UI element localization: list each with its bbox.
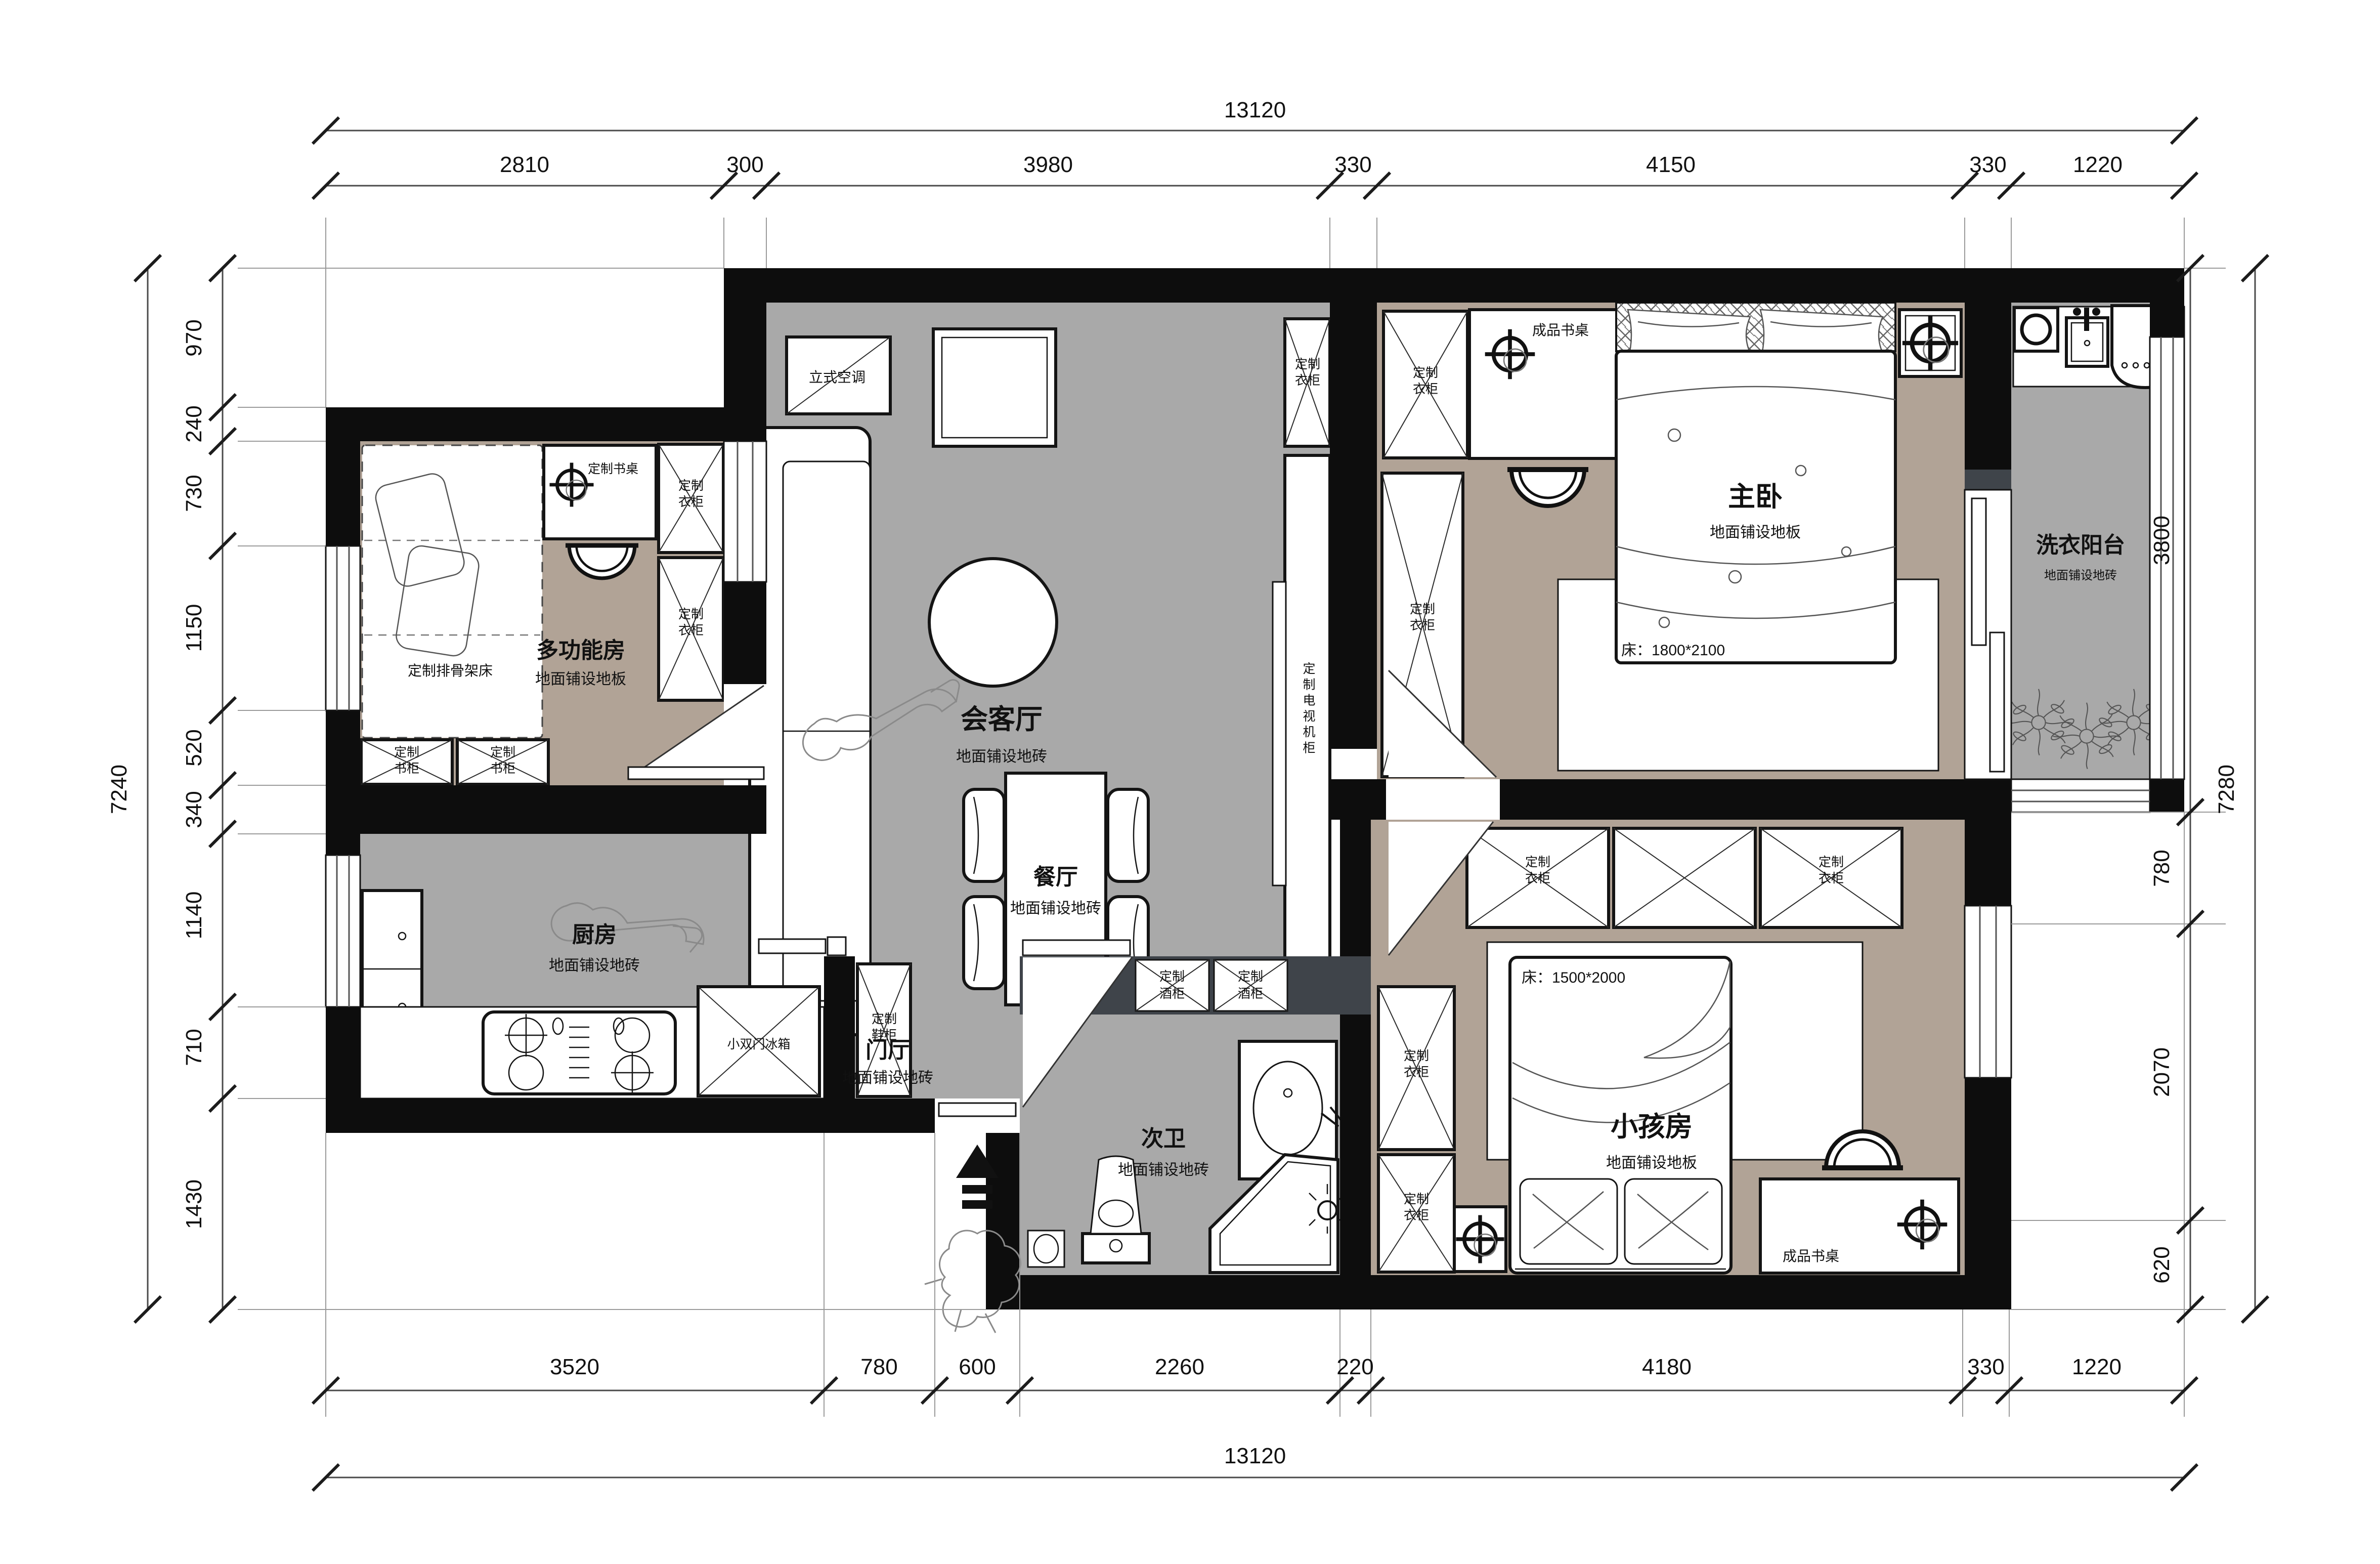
dining-chair xyxy=(964,789,1004,881)
svg-text:330: 330 xyxy=(1969,152,2006,177)
svg-text:衣柜: 衣柜 xyxy=(1413,382,1438,396)
kids-window xyxy=(1965,906,2011,1078)
svg-text:330: 330 xyxy=(1334,152,1371,177)
custom-bed-label: 定制排骨架床 xyxy=(408,663,493,679)
dining-label: 餐厅 xyxy=(1033,865,1078,890)
svg-text:730: 730 xyxy=(182,475,206,512)
dim-bottom-total: 13120 xyxy=(1224,1444,1286,1468)
svg-text:定制: 定制 xyxy=(1295,357,1320,371)
dining-chair xyxy=(1108,789,1148,881)
laundry-label: 洗衣阳台 xyxy=(2036,533,2125,558)
svg-text:定制: 定制 xyxy=(394,745,419,759)
kitchen-door xyxy=(759,937,846,955)
custom-slat-bed xyxy=(362,445,542,738)
svg-text:定制: 定制 xyxy=(872,1012,897,1026)
svg-text:定制: 定制 xyxy=(1159,969,1185,984)
svg-text:220: 220 xyxy=(1336,1355,1373,1379)
svg-text:4180: 4180 xyxy=(1642,1355,1692,1379)
svg-text:地面铺设地砖: 地面铺设地砖 xyxy=(1118,1162,1209,1178)
dim-left-total: 7240 xyxy=(107,765,132,814)
svg-text:2260: 2260 xyxy=(1155,1355,1204,1379)
svg-text:地面铺设地板: 地面铺设地板 xyxy=(1606,1155,1697,1171)
kitchen-label: 厨房 xyxy=(572,922,617,947)
finished-desk-master-label: 成品书桌 xyxy=(1532,322,1589,338)
svg-text:衣柜: 衣柜 xyxy=(678,495,704,509)
svg-text:2810: 2810 xyxy=(500,152,549,177)
kids-bed-size: 床：1500*2000 xyxy=(1522,969,1625,986)
master-bed-size: 床：1800*2100 xyxy=(1621,642,1725,659)
svg-text:240: 240 xyxy=(182,405,206,442)
svg-text:710: 710 xyxy=(182,1029,206,1066)
fridge-label: 小双门冰箱 xyxy=(727,1037,790,1051)
svg-text:定制: 定制 xyxy=(1404,1049,1429,1063)
custom-desk-label: 定制书桌 xyxy=(588,462,638,476)
round-coffee-table xyxy=(929,559,1057,686)
laundry-sink xyxy=(2066,308,2108,366)
svg-text:1150: 1150 xyxy=(182,604,206,652)
svg-text:780: 780 xyxy=(2149,850,2174,886)
svg-text:地面铺设地板: 地面铺设地板 xyxy=(535,671,626,688)
svg-text:地面铺设地砖: 地面铺设地砖 xyxy=(956,748,1047,765)
svg-text:衣柜: 衣柜 xyxy=(678,623,704,638)
svg-text:衣柜: 衣柜 xyxy=(1295,373,1320,388)
multi-label: 多功能房 xyxy=(536,638,625,663)
dim-right-total: 7280 xyxy=(2214,765,2239,814)
svg-text:定制: 定制 xyxy=(1413,366,1438,380)
tv-screen xyxy=(1273,582,1286,885)
finished-desk-kids-label: 成品书桌 xyxy=(1783,1248,1839,1264)
svg-text:1140: 1140 xyxy=(182,892,206,940)
svg-text:书柜: 书柜 xyxy=(394,762,419,776)
svg-text:定制: 定制 xyxy=(678,607,704,621)
ac-label: 立式空调 xyxy=(809,369,866,385)
svg-text:鞋柜: 鞋柜 xyxy=(872,1028,897,1042)
svg-text:定制: 定制 xyxy=(1410,602,1435,616)
svg-text:1220: 1220 xyxy=(2072,1355,2122,1379)
svg-text:520: 520 xyxy=(182,729,206,766)
svg-text:地面铺设地砖: 地面铺设地砖 xyxy=(842,1070,933,1086)
master-laundry-sliding-door xyxy=(1965,490,2011,779)
svg-text:970: 970 xyxy=(182,319,206,356)
svg-text:340: 340 xyxy=(182,791,206,828)
svg-text:衣柜: 衣柜 xyxy=(1410,618,1435,632)
svg-text:1430: 1430 xyxy=(182,1179,206,1229)
svg-text:地面铺设地砖: 地面铺设地砖 xyxy=(549,957,640,974)
multi-room-window xyxy=(326,546,360,710)
svg-text:300: 300 xyxy=(726,152,763,177)
living-left-column xyxy=(724,441,766,582)
svg-text:定制: 定制 xyxy=(1238,969,1263,984)
svg-text:330: 330 xyxy=(1967,1355,2004,1379)
dining-chair xyxy=(964,897,1004,989)
svg-text:600: 600 xyxy=(959,1355,996,1379)
gas-stove xyxy=(483,1012,675,1094)
svg-text:780: 780 xyxy=(860,1355,897,1379)
entry-door xyxy=(935,1098,1020,1133)
svg-text:1220: 1220 xyxy=(2073,152,2123,177)
wall-picture xyxy=(933,329,1056,446)
svg-text:2070: 2070 xyxy=(2149,1047,2174,1097)
master-label: 主卧 xyxy=(1728,482,1783,512)
svg-text:地面铺设地砖: 地面铺设地砖 xyxy=(2044,569,2117,582)
svg-text:4150: 4150 xyxy=(1646,152,1696,177)
svg-text:衣柜: 衣柜 xyxy=(1819,871,1844,885)
svg-text:定制: 定制 xyxy=(490,745,515,759)
living-label: 会客厅 xyxy=(961,704,1043,735)
svg-text:620: 620 xyxy=(2149,1246,2174,1283)
kids-label: 小孩房 xyxy=(1611,1112,1693,1142)
svg-text:定制: 定制 xyxy=(1819,855,1844,869)
dim-top-total: 13120 xyxy=(1224,98,1286,122)
laundry-bottom-window xyxy=(2011,779,2150,812)
bath2-label: 次卫 xyxy=(1141,1126,1186,1151)
svg-text:定制: 定制 xyxy=(678,479,704,493)
svg-text:3800: 3800 xyxy=(2149,516,2174,565)
floor-plan-canvas: 13120 2810 300 3980 330 4150 330 1220 35… xyxy=(0,0,2380,1564)
svg-text:书柜: 书柜 xyxy=(490,762,515,776)
svg-text:地面铺设地砖: 地面铺设地砖 xyxy=(1010,900,1101,917)
svg-text:酒柜: 酒柜 xyxy=(1238,987,1263,1001)
svg-text:衣柜: 衣柜 xyxy=(1525,871,1550,885)
svg-text:衣柜: 衣柜 xyxy=(1404,1065,1429,1079)
svg-text:衣柜: 衣柜 xyxy=(1404,1208,1429,1222)
svg-text:定制: 定制 xyxy=(1525,855,1550,869)
svg-text:定制: 定制 xyxy=(1404,1192,1429,1206)
kitchen-window xyxy=(326,855,360,1007)
svg-text:3520: 3520 xyxy=(550,1355,599,1379)
svg-text:3980: 3980 xyxy=(1023,152,1073,177)
svg-text:酒柜: 酒柜 xyxy=(1159,987,1185,1001)
svg-text:地面铺设地板: 地面铺设地板 xyxy=(1710,524,1801,541)
